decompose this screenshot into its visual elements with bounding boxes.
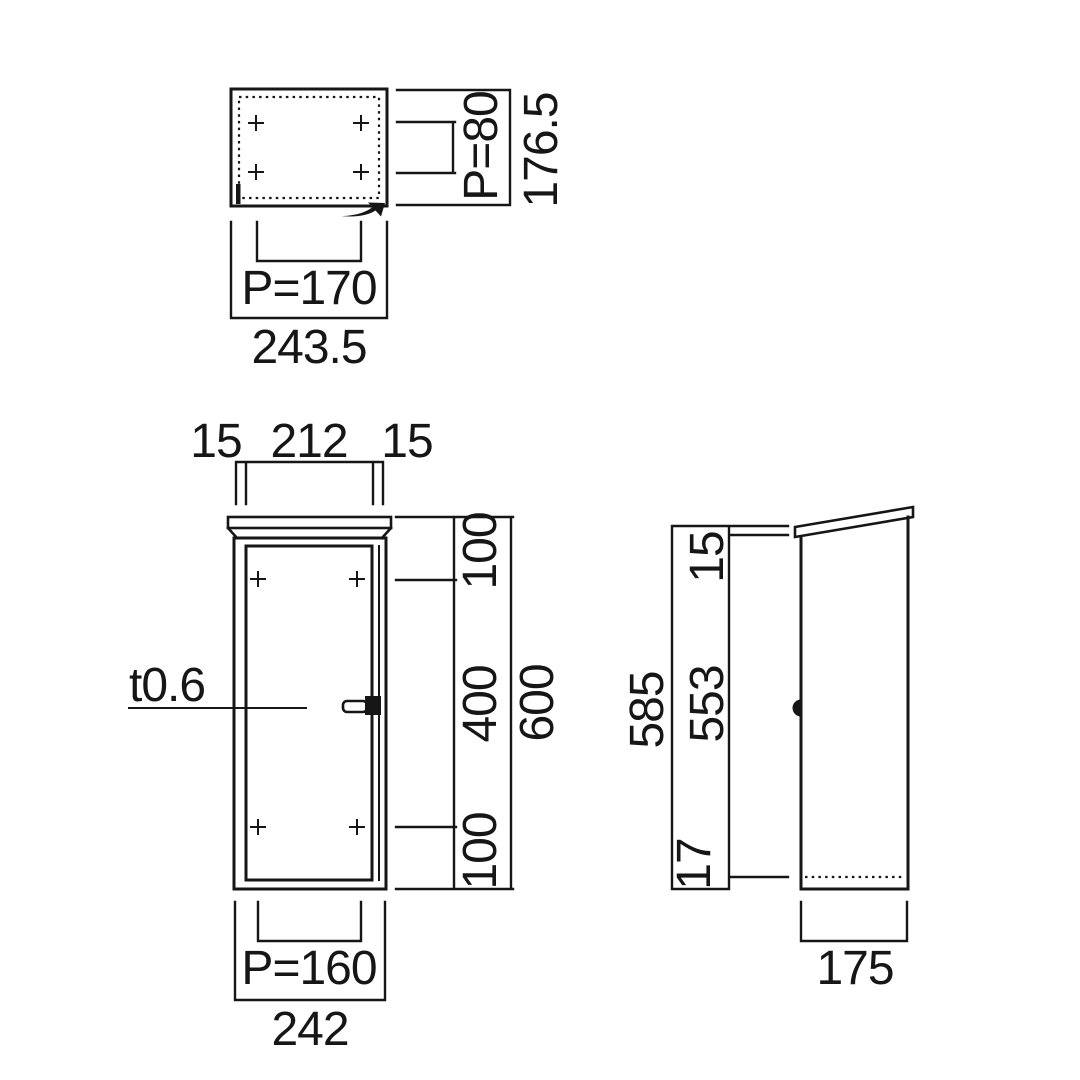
handle-knob: [343, 701, 367, 712]
side-view: 585 553 15 17 175: [621, 507, 913, 995]
mount-hole-mark: [354, 116, 368, 130]
dim-label-front-margin-left: 15: [190, 415, 241, 468]
dim-label-plan-overall-width: 243.5: [251, 321, 366, 374]
plan-pitch-width-bracket: [257, 222, 361, 261]
dim-label-front-opening-width: 212: [270, 415, 347, 468]
front-body-outline: [234, 538, 386, 889]
front-lid: [228, 517, 391, 528]
technical-drawing: P=170 243.5 P=80 176.5 15 212 15 t0.6 10…: [0, 0, 1080, 1080]
dim-label-plan-pitch-width: P=170: [241, 262, 376, 315]
side-knob: [793, 700, 801, 717]
dim-label-front-pitch-width: P=160: [241, 942, 376, 995]
mount-hole-mark: [354, 165, 368, 179]
dim-label-side-top-cap: 15: [681, 531, 734, 582]
dim-label-plan-overall-depth: 176.5: [515, 92, 568, 207]
dim-label-front-hole-bottom-offset: 100: [454, 812, 507, 889]
side-depth-bracket: [801, 902, 907, 941]
plan-outline: [231, 89, 387, 206]
mount-hole-mark: [249, 165, 263, 179]
front-view: 15 212 15 t0.6 100 400 100 600 P=160 242: [129, 415, 564, 1056]
dim-label-front-overall-width: 242: [271, 1003, 348, 1056]
hinge-mark: [236, 184, 241, 204]
front-pitch-width-bracket: [258, 902, 361, 941]
dim-label-side-bottom-inset: 17: [668, 838, 721, 889]
side-body-outline: [801, 517, 908, 889]
mount-hole-mark: [350, 572, 364, 586]
dim-label-side-overall-height: 585: [621, 671, 674, 748]
plan-view: P=170 243.5 P=80 176.5: [231, 89, 568, 374]
dim-label-plan-pitch-depth: P=80: [455, 91, 508, 200]
side-lid: [795, 507, 913, 537]
dim-label-front-hole-span: 400: [454, 665, 507, 742]
dim-label-front-hole-top-offset: 100: [454, 512, 507, 589]
front-top-dim-bracket: [236, 462, 383, 504]
mount-hole-mark: [249, 116, 263, 130]
dim-label-front-body-height: 600: [511, 664, 564, 741]
dim-label-side-door-height: 553: [681, 665, 734, 742]
mount-hole-mark: [251, 820, 265, 834]
dim-label-side-depth: 175: [816, 942, 893, 995]
handle-base: [365, 696, 381, 715]
thickness-note-label: t0.6: [129, 659, 205, 712]
dim-label-front-margin-right: 15: [381, 415, 432, 468]
plan-dashed-inner-outline: [239, 97, 379, 198]
mount-hole-mark: [251, 572, 265, 586]
mount-hole-mark: [350, 820, 364, 834]
drawing-svg: P=170 243.5 P=80 176.5 15 212 15 t0.6 10…: [0, 0, 1080, 1080]
